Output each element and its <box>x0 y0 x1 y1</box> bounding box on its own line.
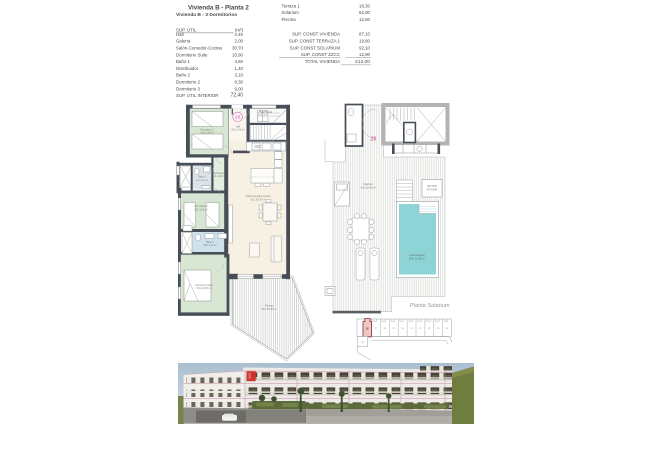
svg-text:4,60: 4,60 <box>234 59 243 64</box>
svg-text:10,90: 10,90 <box>232 52 244 57</box>
svg-text:62,00: 62,00 <box>359 10 371 15</box>
svg-text:Vivienda B - 3 Dormitorios: Vivienda B - 3 Dormitorios <box>176 12 237 18</box>
svg-text:SUL 12,50 m²: SUL 12,50 m² <box>409 257 425 261</box>
svg-text:SUL 8,30 m²: SUL 8,30 m² <box>200 132 214 135</box>
svg-text:28: 28 <box>235 115 241 121</box>
svg-text:SUL 9,00 m²: SUL 9,00 m² <box>194 208 208 211</box>
svg-text:SUL 18,30 m²: SUL 18,30 m² <box>262 308 277 311</box>
svg-text:Distribuidor: Distribuidor <box>176 66 199 71</box>
svg-text:18,30: 18,30 <box>359 3 371 8</box>
svg-text:Baño 1: Baño 1 <box>176 59 190 64</box>
svg-text:2,00: 2,00 <box>234 39 243 44</box>
svg-text:19,80: 19,80 <box>359 39 371 44</box>
svg-text:Hall: Hall <box>176 32 184 37</box>
svg-text:9,00: 9,00 <box>234 86 243 91</box>
svg-text:2,40: 2,40 <box>234 32 243 37</box>
svg-text:Dormitorio Suite: Dormitorio Suite <box>176 52 208 57</box>
svg-text:Galeria: Galeria <box>176 39 191 44</box>
svg-text:8,30: 8,30 <box>234 80 243 85</box>
svg-text:SUP. CONST VIVIENDA: SUP. CONST VIVIENDA <box>292 32 340 37</box>
svg-text:Baño 1: Baño 1 <box>198 176 206 179</box>
svg-text:SUL 4,60 m²: SUL 4,60 m² <box>196 179 208 182</box>
svg-text:72,40: 72,40 <box>230 93 243 99</box>
svg-text:Vivienda B - Planta 2: Vivienda B - Planta 2 <box>188 5 249 12</box>
svg-text:SUL 30,70 m²: SUL 30,70 m² <box>251 199 266 202</box>
svg-text:SUP. CONST TERRAZA 1: SUP. CONST TERRAZA 1 <box>289 39 341 44</box>
svg-text:Planta Solarium: Planta Solarium <box>410 303 450 309</box>
svg-text:SUP. CONST SOLARIUM: SUP. CONST SOLARIUM <box>290 45 341 50</box>
svg-text:Lámina agua: Lámina agua <box>410 253 426 257</box>
svg-text:12,90: 12,90 <box>359 52 371 57</box>
svg-text:Dormitorio 2: Dormitorio 2 <box>176 80 200 85</box>
svg-text:Gale Secad: Gale Secad <box>260 111 273 114</box>
svg-text:SUL 2,40 m²: SUL 2,40 m² <box>231 129 245 132</box>
svg-text:28: 28 <box>371 137 377 143</box>
svg-text:Dormitorio 3: Dormitorio 3 <box>176 86 200 91</box>
svg-text:212,00: 212,00 <box>355 59 370 65</box>
svg-text:92,10: 92,10 <box>359 45 371 50</box>
svg-text:Salón-Comedor-Cocina: Salón-Comedor-Cocina <box>176 46 222 51</box>
svg-text:SUL 10,90 m²: SUL 10,90 m² <box>197 287 212 290</box>
svg-text:12,50: 12,50 <box>359 17 371 22</box>
svg-text:1,40: 1,40 <box>234 66 243 71</box>
svg-text:SUL 3,10 m²: SUL 3,10 m² <box>203 244 217 247</box>
svg-text:TOTAL VIVIENDA: TOTAL VIVIENDA <box>305 59 340 64</box>
svg-text:SUP. ÚTIL INTERIOR: SUP. ÚTIL INTERIOR <box>176 93 218 98</box>
svg-text:Baño 2: Baño 2 <box>176 73 190 78</box>
svg-text:Piscina: Piscina <box>282 17 297 22</box>
svg-text:SUL 1,40 m²: SUL 1,40 m² <box>212 175 226 178</box>
svg-text:30,70: 30,70 <box>232 46 244 51</box>
svg-text:SUL 62,00 m²: SUL 62,00 m² <box>360 187 375 190</box>
svg-text:Terraza 1: Terraza 1 <box>282 3 301 8</box>
svg-text:SUP. CONST ZZCC: SUP. CONST ZZCC <box>301 52 340 57</box>
svg-text:3,10: 3,10 <box>234 73 243 78</box>
svg-text:Solarium: Solarium <box>282 10 300 15</box>
svg-text:MOTOR: MOTOR <box>427 184 437 188</box>
svg-text:87,10: 87,10 <box>359 32 371 37</box>
svg-text:PISCINA: PISCINA <box>427 188 438 192</box>
